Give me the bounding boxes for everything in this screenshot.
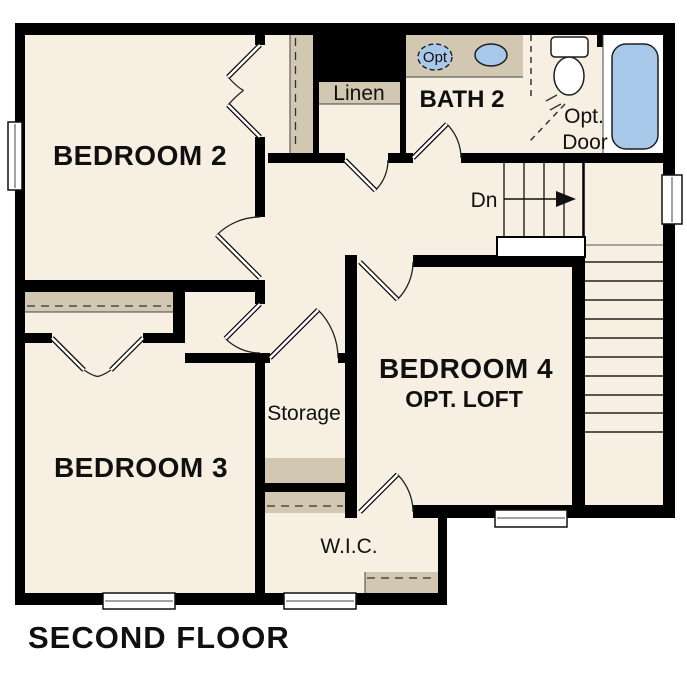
floor-plan-page: BEDROOM 2 BEDROOM 3 BEDROOM 4 OPT. LOFT … [0, 0, 687, 687]
window-stairs-right [662, 175, 682, 224]
stair-landing [497, 237, 585, 257]
optional-door-label-line2: Door [562, 131, 608, 154]
bedroom2-label: BEDROOM 2 [53, 140, 227, 171]
sink-icon [475, 44, 507, 66]
optional-door-label-line1: Opt. [564, 105, 604, 128]
stairs-down-label: Dn [471, 189, 498, 212]
linen-label: Linen [333, 82, 384, 105]
wic-label: W.I.C. [320, 535, 377, 558]
bath2-label: BATH 2 [420, 86, 505, 113]
bedroom4-sublabel: OPT. LOFT [405, 386, 523, 412]
bedroom3-closet-shelf [25, 292, 173, 312]
bedroom2-closet-shelf [290, 35, 313, 153]
window-bedroom3-bottom [103, 593, 175, 609]
floor-title: SECOND FLOOR [28, 620, 290, 655]
wic-shelf-lower [365, 572, 438, 593]
optional-sink-label: Opt [423, 49, 448, 66]
storage-shelf [265, 458, 345, 483]
storage-label: Storage [267, 402, 341, 425]
bedroom4-label: BEDROOM 4 [379, 353, 553, 384]
window-bedroom4-bottom [495, 510, 567, 527]
window-wic-bottom [284, 593, 356, 609]
bedroom3-label: BEDROOM 3 [54, 452, 228, 483]
bathtub-icon [612, 44, 658, 149]
wic-shelf-upper [265, 492, 345, 513]
window-bedroom2-left [8, 122, 22, 190]
floor-plan-drawing: BEDROOM 2 BEDROOM 3 BEDROOM 4 OPT. LOFT … [0, 0, 687, 687]
toilet-icon [551, 37, 588, 95]
